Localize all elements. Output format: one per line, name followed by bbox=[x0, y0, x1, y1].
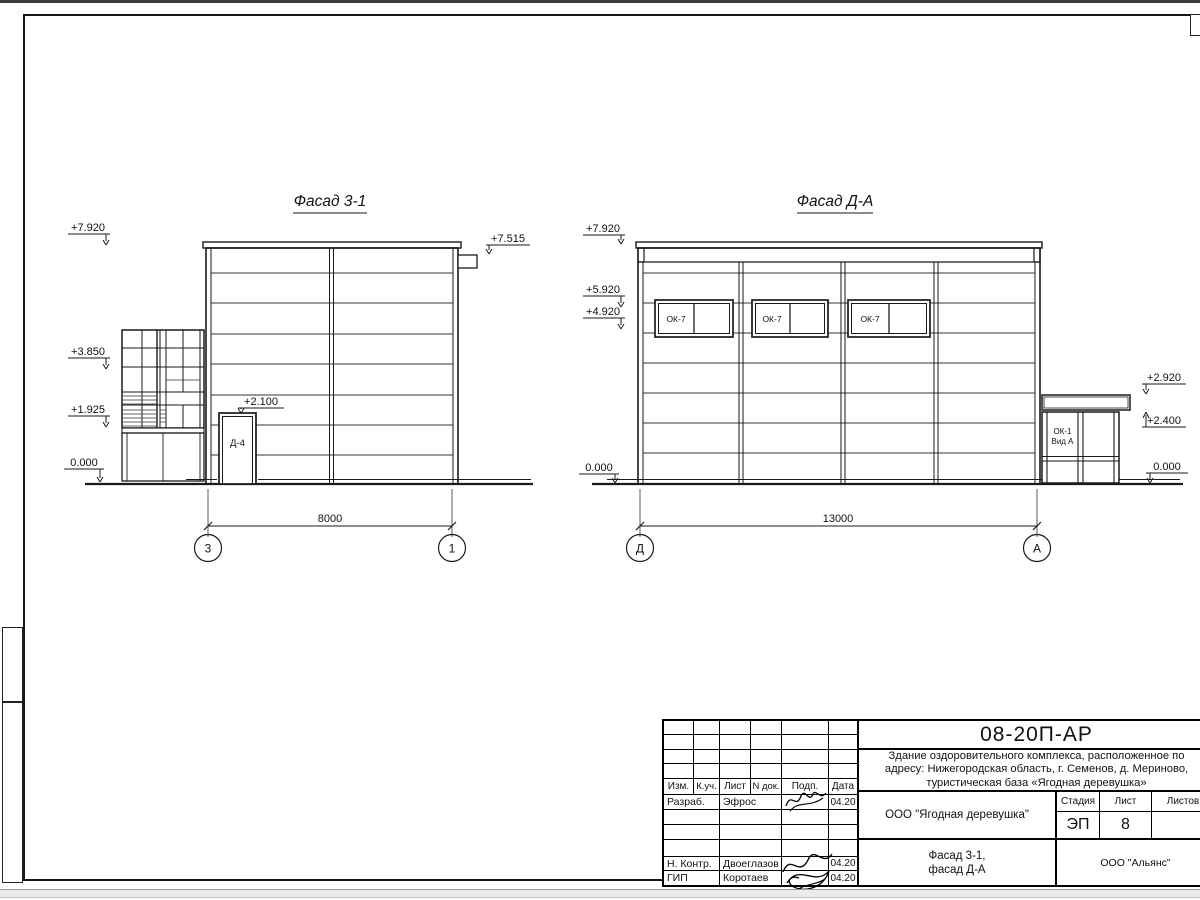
window-label: ОК-7 bbox=[666, 314, 685, 324]
drawing-sheet: Фасад 3-1 bbox=[0, 0, 1200, 900]
left-margin-box-lower bbox=[2, 702, 23, 883]
col-ndok: N док. bbox=[751, 779, 782, 794]
elevation-mark: +7.920 bbox=[583, 223, 625, 244]
name: Двоеглазов bbox=[720, 857, 782, 870]
facade-d-a-drawing: Фасад Д-А bbox=[575, 185, 1200, 565]
elevation-mark: 0.000 bbox=[64, 457, 104, 482]
change-row bbox=[664, 721, 857, 735]
building-body bbox=[636, 242, 1042, 484]
dimension-text: 8000 bbox=[318, 513, 342, 525]
corner-doc-box bbox=[1190, 14, 1200, 36]
svg-text:+3.850: +3.850 bbox=[71, 346, 105, 358]
role: Н. Контр. bbox=[664, 857, 720, 870]
svg-text:+1.925: +1.925 bbox=[71, 404, 105, 416]
design-company: ООО "Альянс" bbox=[1057, 840, 1200, 885]
axis-bubble-label: 1 bbox=[449, 542, 456, 556]
description-line: Здание оздоровительного комплекса, распо… bbox=[889, 750, 1185, 763]
role: Разраб. bbox=[664, 795, 720, 809]
door-label: Д-4 bbox=[230, 438, 245, 449]
svg-text:+2.400: +2.400 bbox=[1147, 415, 1181, 427]
left-margin-box-upper bbox=[2, 627, 23, 702]
elevation-mark: +2.400 bbox=[1142, 412, 1186, 427]
window-ok7-3: ОК-7 bbox=[848, 300, 930, 337]
elevation-mark: +4.920 bbox=[583, 306, 625, 329]
dimension-text: 13000 bbox=[823, 513, 854, 525]
elevation-mark: +2.920 bbox=[1142, 372, 1186, 394]
view-title: Фасад 3-1 bbox=[294, 193, 367, 210]
col-list: Лист bbox=[720, 779, 751, 794]
drawing-title-line: Фасад 3-1, bbox=[928, 849, 985, 863]
window-ok7-1: ОК-7 bbox=[655, 300, 733, 337]
svg-text:0.000: 0.000 bbox=[70, 457, 98, 469]
entrance-annex: ОК-1 Вид А bbox=[1042, 395, 1130, 483]
window-label: ОК-7 bbox=[762, 314, 781, 324]
window-ok7-2: ОК-7 bbox=[752, 300, 828, 337]
svg-text:+2.100: +2.100 bbox=[244, 396, 278, 408]
stair-block bbox=[122, 330, 204, 481]
col-kuch: К.уч. bbox=[694, 779, 720, 794]
svg-text:+5.920: +5.920 bbox=[586, 284, 620, 296]
roof-scupper bbox=[458, 255, 477, 268]
facade-3-1-title: Фасад 3-1 bbox=[293, 193, 367, 213]
sheets-header: Листов bbox=[1152, 792, 1200, 812]
dimension-and-axes: 8000 3 1 bbox=[195, 489, 466, 562]
window-label: ОК-7 bbox=[860, 314, 879, 324]
name: Эфрос bbox=[720, 795, 782, 809]
axis-bubble-label: А bbox=[1033, 542, 1041, 556]
sheet-number: 8 bbox=[1100, 812, 1152, 840]
stage-header: Стадия bbox=[1057, 792, 1100, 812]
door-d4: Д-4 bbox=[219, 413, 256, 484]
signature-scribble bbox=[783, 785, 829, 815]
svg-text:+7.920: +7.920 bbox=[586, 223, 620, 235]
elevation-mark: +5.920 bbox=[583, 284, 625, 307]
title-block: Изм. К.уч. Лист N док. Подп. Дата Разраб… bbox=[662, 719, 1200, 887]
signature-scribble bbox=[779, 845, 837, 893]
change-row bbox=[664, 764, 857, 779]
elevation-mark: +3.850 bbox=[68, 346, 110, 369]
facade-d-a-title: Фасад Д-А bbox=[797, 193, 874, 213]
change-row bbox=[664, 750, 857, 764]
elevation-mark: +2.100 bbox=[238, 396, 284, 413]
doc-number: 08-20П-АР bbox=[859, 721, 1200, 750]
description-line: адресу: Нижегородская область, г. Семено… bbox=[885, 763, 1188, 777]
elevation-mark: +1.925 bbox=[68, 404, 110, 427]
annex-window-label: ОК-1 bbox=[1054, 427, 1073, 436]
col-izm: Изм. bbox=[664, 779, 694, 794]
svg-text:0.000: 0.000 bbox=[585, 462, 613, 474]
axis-bubble-label: Д bbox=[636, 542, 644, 556]
elevation-mark: +7.920 bbox=[68, 222, 110, 245]
svg-text:+4.920: +4.920 bbox=[586, 306, 620, 318]
view-title: Фасад Д-А bbox=[797, 193, 874, 210]
bottom-window-edge bbox=[0, 889, 1200, 898]
role: ГИП bbox=[664, 871, 720, 885]
drawing-title-line: фасад Д-А bbox=[928, 863, 985, 877]
col-data: Дата bbox=[829, 779, 857, 794]
svg-text:+2.920: +2.920 bbox=[1147, 372, 1181, 384]
dimension-and-axes: 13000 Д А bbox=[627, 489, 1051, 562]
sheets-total bbox=[1152, 812, 1200, 840]
description-line: туристическая база «Ягодная деревушка» bbox=[926, 777, 1146, 791]
axis-bubble-label: 3 bbox=[205, 542, 212, 556]
annex-window-label: Вид А bbox=[1051, 437, 1074, 446]
svg-text:0.000: 0.000 bbox=[1153, 461, 1181, 473]
drawing-title: Фасад 3-1, фасад Д-А bbox=[859, 840, 1057, 885]
signature-row-empty bbox=[664, 825, 857, 840]
wall-mullions bbox=[739, 262, 938, 484]
project-description: Здание оздоровительного комплекса, распо… bbox=[859, 750, 1200, 792]
elevation-mark: +7.515 bbox=[486, 233, 530, 254]
svg-text:+7.515: +7.515 bbox=[491, 233, 525, 245]
name: Коротаев bbox=[720, 871, 782, 885]
change-row bbox=[664, 735, 857, 750]
stage-value: ЭП bbox=[1057, 812, 1100, 840]
client-name: ООО "Ягодная деревушка" bbox=[859, 792, 1057, 840]
date: 04.20 bbox=[829, 795, 857, 809]
sheet-header: Лист bbox=[1100, 792, 1152, 812]
top-window-edge bbox=[0, 0, 1200, 3]
facade-3-1-drawing: Фасад 3-1 bbox=[60, 185, 540, 565]
title-block-right: 08-20П-АР Здание оздоровительного компле… bbox=[857, 721, 1200, 885]
elevation-mark: 0.000 bbox=[579, 462, 619, 483]
svg-text:+7.920: +7.920 bbox=[71, 222, 105, 234]
